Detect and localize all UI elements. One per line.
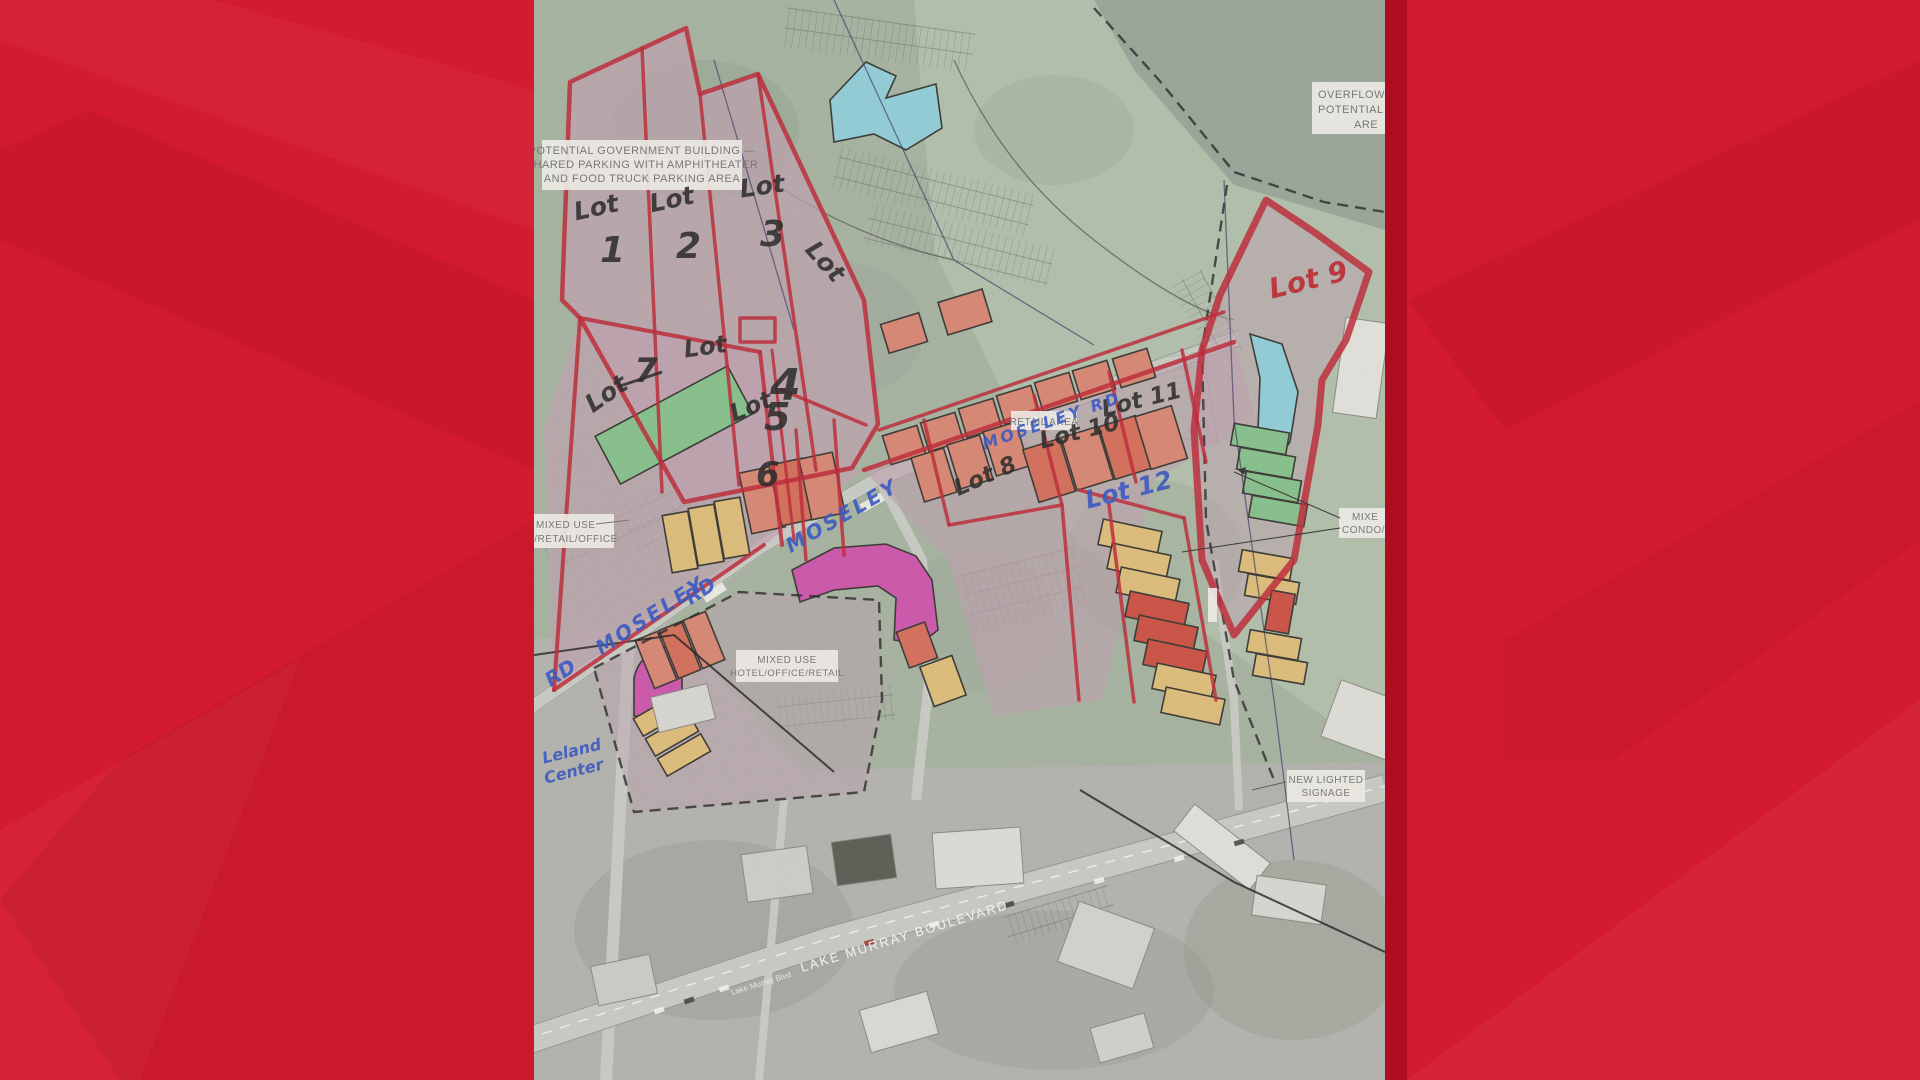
site-plan-photo: POTENTIAL GOVERNMENT BUILDING — SHARED P… xyxy=(534,0,1385,1080)
photo-grain xyxy=(534,0,1385,1080)
chevron-shape xyxy=(1407,700,1920,1080)
site-plan-map: POTENTIAL GOVERNMENT BUILDING — SHARED P… xyxy=(534,0,1385,1080)
red-edge-strip xyxy=(1385,0,1407,1080)
left-red-band xyxy=(0,0,534,1080)
broadcast-frame: POTENTIAL GOVERNMENT BUILDING — SHARED P… xyxy=(0,0,1920,1080)
chevron-shape xyxy=(1505,400,1920,760)
right-red-band xyxy=(1385,0,1920,1080)
chevron-shape xyxy=(1407,60,1920,430)
